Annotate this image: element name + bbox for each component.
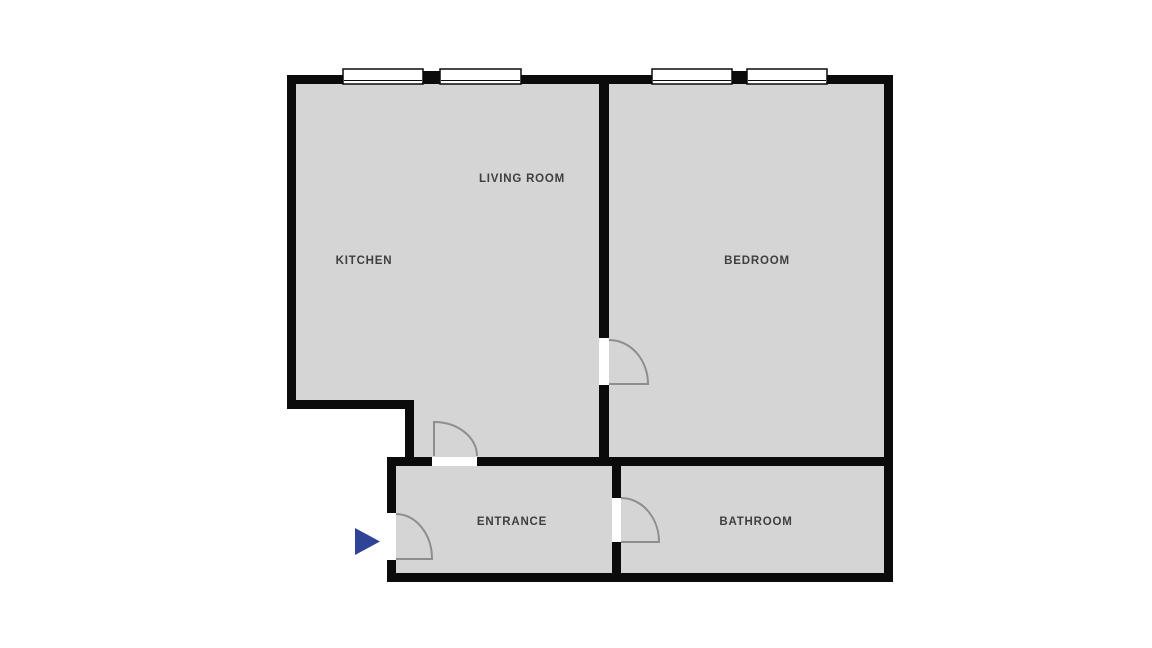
threshold-bathroom (612, 498, 621, 542)
room-label-living-room: LIVING ROOM (479, 173, 565, 185)
room-label-bathroom: BATHROOM (719, 516, 792, 528)
wall-divider-living-bedroom-upper (599, 75, 609, 338)
wall-kitchen-bottom (287, 400, 414, 409)
room-label-entrance: ENTRANCE (477, 516, 547, 528)
entry-arrow-icon (355, 528, 380, 555)
wall-right (884, 75, 893, 582)
room-label-kitchen: KITCHEN (336, 255, 393, 267)
wall-entrance-left-upper (387, 457, 396, 513)
window-icon (747, 69, 827, 84)
wall-window-gap-left (423, 71, 440, 84)
window-icon (343, 69, 423, 84)
wall-step (405, 400, 414, 466)
wall-mid-right (477, 457, 884, 466)
threshold-living-entrance (432, 457, 477, 466)
window-icon (652, 69, 732, 84)
room-label-bedroom: BEDROOM (724, 255, 790, 267)
wall-divider-entrance-bathroom-upper (612, 466, 621, 498)
floor-bedroom (604, 80, 889, 462)
room-floors (292, 80, 889, 578)
wall-divider-entrance-bathroom-lower (612, 542, 621, 573)
floor-plan-canvas: KITCHEN LIVING ROOM BEDROOM ENTRANCE BAT… (0, 0, 1152, 648)
wall-divider-living-bedroom-lower (599, 385, 609, 457)
wall-window-gap-right (732, 71, 747, 84)
threshold-bedroom (599, 338, 609, 385)
floor-plan: KITCHEN LIVING ROOM BEDROOM ENTRANCE BAT… (0, 0, 1152, 648)
threshold-entry (387, 513, 396, 560)
wall-bottom (387, 573, 893, 582)
wall-left (287, 75, 296, 409)
window-icon (440, 69, 521, 84)
